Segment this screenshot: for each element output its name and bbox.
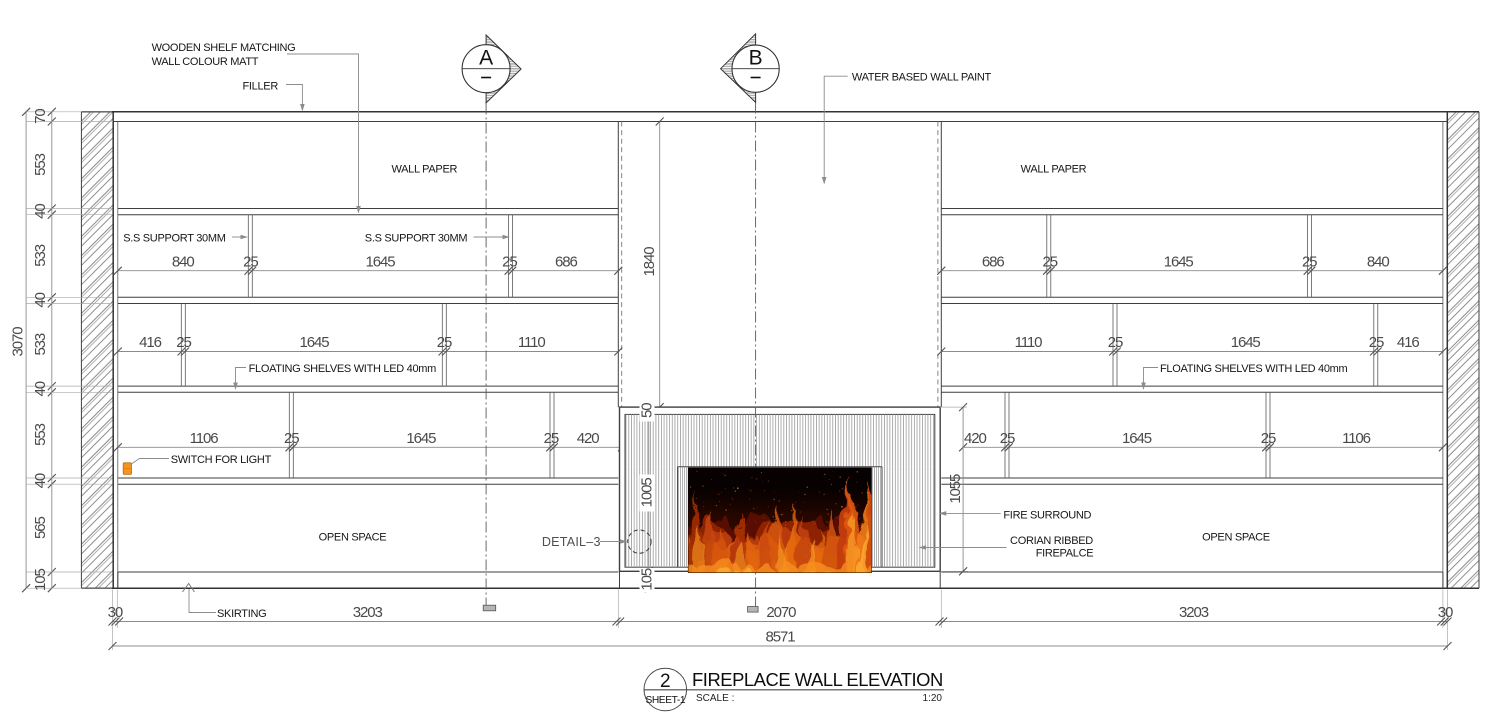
svg-text:S.S SUPPORT 30MM: S.S SUPPORT 30MM — [365, 233, 468, 245]
svg-text:25: 25 — [1108, 334, 1123, 351]
svg-text:FLOATING SHELVES WITH LED 40mm: FLOATING SHELVES WITH LED 40mm — [249, 363, 437, 375]
svg-text:WALL PAPER: WALL PAPER — [1021, 163, 1087, 175]
svg-text:686: 686 — [555, 253, 577, 270]
svg-text:40: 40 — [32, 473, 49, 488]
svg-text:1645: 1645 — [366, 253, 396, 270]
svg-text:25: 25 — [1261, 430, 1276, 447]
svg-text:25: 25 — [243, 253, 258, 270]
svg-text:SHEET-1: SHEET-1 — [645, 695, 685, 706]
svg-text:25: 25 — [1369, 334, 1384, 351]
svg-text:1645: 1645 — [1122, 430, 1152, 447]
svg-text:1645: 1645 — [406, 430, 436, 447]
svg-text:30: 30 — [108, 604, 123, 621]
svg-text:1110: 1110 — [1015, 334, 1043, 351]
svg-text:WALL PAPER: WALL PAPER — [391, 163, 457, 175]
svg-text:WATER BASED WALL PAINT: WATER BASED WALL PAINT — [852, 72, 992, 84]
svg-text:416: 416 — [139, 334, 161, 351]
svg-text:25: 25 — [544, 430, 559, 447]
svg-text:25: 25 — [1302, 253, 1317, 270]
svg-text:FLOATING SHELVES WITH LED 40mm: FLOATING SHELVES WITH LED 40mm — [1160, 363, 1348, 375]
svg-text:WOODEN SHELF MATCHING: WOODEN SHELF MATCHING — [152, 42, 296, 54]
svg-text:1840: 1840 — [641, 247, 658, 277]
svg-text:25: 25 — [1043, 253, 1058, 270]
svg-text:840: 840 — [1367, 253, 1389, 270]
svg-text:416: 416 — [1397, 334, 1419, 351]
svg-text:40: 40 — [32, 381, 49, 396]
svg-text:105: 105 — [32, 568, 49, 590]
svg-text:1106: 1106 — [190, 430, 219, 447]
svg-text:25: 25 — [437, 334, 452, 351]
svg-text:DETAIL–3: DETAIL–3 — [542, 535, 601, 549]
svg-text:1645: 1645 — [300, 334, 330, 351]
svg-text:1106: 1106 — [1342, 430, 1371, 447]
svg-text:SWITCH FOR LIGHT: SWITCH FOR LIGHT — [171, 454, 272, 466]
svg-text:1:20: 1:20 — [923, 693, 943, 704]
svg-text:3203: 3203 — [353, 604, 383, 621]
svg-text:533: 533 — [32, 244, 49, 266]
svg-text:S.S SUPPORT 30MM: S.S SUPPORT 30MM — [123, 233, 226, 245]
svg-text:2070: 2070 — [766, 604, 796, 621]
svg-text:SCALE :: SCALE : — [696, 693, 734, 704]
svg-text:420: 420 — [577, 430, 599, 447]
svg-text:40: 40 — [32, 292, 49, 307]
svg-text:686: 686 — [982, 253, 1004, 270]
svg-text:B: B — [749, 47, 763, 70]
svg-text:2: 2 — [660, 671, 671, 692]
svg-text:1055: 1055 — [947, 474, 964, 504]
svg-text:1645: 1645 — [1164, 253, 1194, 270]
svg-text:553: 553 — [32, 153, 49, 175]
svg-text:FILLER: FILLER — [243, 81, 279, 93]
svg-text:FIREPLACE WALL ELEVATION: FIREPLACE WALL ELEVATION — [692, 669, 943, 690]
svg-text:CORIAN RIBBED: CORIAN RIBBED — [1010, 535, 1093, 547]
svg-text:OPEN SPACE: OPEN SPACE — [1202, 532, 1270, 544]
svg-text:FIRE SURROUND: FIRE SURROUND — [1003, 510, 1091, 522]
svg-text:1110: 1110 — [518, 334, 546, 351]
svg-text:30: 30 — [1438, 604, 1453, 621]
svg-text:40: 40 — [32, 204, 49, 219]
svg-text:25: 25 — [1000, 430, 1015, 447]
svg-text:8571: 8571 — [766, 629, 796, 646]
svg-text:WALL COLOUR MATT: WALL COLOUR MATT — [152, 56, 259, 68]
svg-text:SKIRTING: SKIRTING — [217, 608, 266, 620]
svg-text:A: A — [479, 47, 493, 70]
svg-text:25: 25 — [176, 334, 191, 351]
svg-text:553: 553 — [32, 423, 49, 445]
svg-text:420: 420 — [964, 430, 986, 447]
svg-text:105: 105 — [639, 568, 656, 590]
svg-text:FIREPALCE: FIREPALCE — [1036, 548, 1094, 560]
svg-text:50: 50 — [639, 403, 656, 418]
svg-text:1005: 1005 — [639, 478, 656, 508]
svg-text:1645: 1645 — [1231, 334, 1261, 351]
svg-text:70: 70 — [32, 109, 49, 124]
svg-text:25: 25 — [284, 430, 299, 447]
svg-text:OPEN SPACE: OPEN SPACE — [319, 532, 387, 544]
svg-text:3203: 3203 — [1179, 604, 1209, 621]
svg-text:3070: 3070 — [10, 327, 27, 357]
svg-text:565: 565 — [32, 516, 49, 538]
svg-text:25: 25 — [502, 253, 517, 270]
svg-text:533: 533 — [32, 333, 49, 355]
svg-text:840: 840 — [172, 253, 194, 270]
